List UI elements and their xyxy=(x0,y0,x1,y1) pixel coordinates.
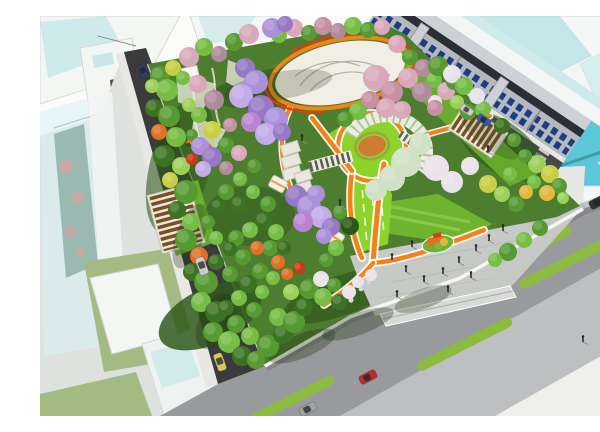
tree xyxy=(247,159,261,173)
tree xyxy=(494,186,510,202)
tree xyxy=(293,212,313,232)
tree xyxy=(330,23,346,39)
tree xyxy=(295,298,313,316)
tree xyxy=(374,19,390,35)
tree xyxy=(174,180,198,204)
tree xyxy=(516,232,532,248)
tree xyxy=(241,327,259,345)
aerial-park-rendering: Aerial rendering of urban park master pl… xyxy=(40,16,600,416)
tree xyxy=(255,285,269,299)
tree xyxy=(307,185,325,203)
tree xyxy=(239,24,259,44)
tree xyxy=(204,90,224,110)
tree xyxy=(441,171,463,193)
tree xyxy=(182,213,200,231)
tree xyxy=(469,88,485,104)
tree xyxy=(319,253,333,267)
tree xyxy=(227,315,245,333)
tree xyxy=(281,268,293,280)
tree xyxy=(231,290,247,306)
tree xyxy=(175,229,197,251)
tree xyxy=(156,79,178,101)
tree xyxy=(341,217,359,235)
tree xyxy=(365,269,377,281)
tree xyxy=(503,167,517,181)
tree xyxy=(360,22,376,38)
tree xyxy=(231,145,247,161)
tree xyxy=(182,98,196,112)
tree xyxy=(233,172,247,186)
tree xyxy=(268,224,284,240)
tree xyxy=(246,302,262,318)
tree xyxy=(494,118,510,134)
tree xyxy=(162,172,178,188)
tree xyxy=(208,254,224,270)
tree xyxy=(246,185,260,199)
tree xyxy=(222,266,238,282)
tree xyxy=(250,241,264,255)
tree xyxy=(186,153,198,165)
tree xyxy=(218,184,234,200)
tree xyxy=(223,242,237,256)
tree xyxy=(219,161,233,175)
tree xyxy=(277,16,293,32)
tree xyxy=(518,149,532,163)
tree xyxy=(328,240,344,256)
tree xyxy=(195,38,213,56)
tree xyxy=(260,196,276,212)
tree xyxy=(316,228,332,244)
tree xyxy=(151,124,167,140)
tree xyxy=(266,271,280,285)
tree xyxy=(242,222,258,238)
tree xyxy=(402,49,418,65)
tree xyxy=(153,145,175,167)
tree xyxy=(427,100,443,116)
tree xyxy=(235,249,251,265)
tree xyxy=(532,220,548,236)
tree xyxy=(557,192,569,204)
tree xyxy=(218,300,234,316)
tree xyxy=(195,161,211,177)
tree xyxy=(388,35,406,53)
tree xyxy=(277,241,291,255)
tree xyxy=(412,82,432,102)
tree xyxy=(376,98,396,118)
tree xyxy=(409,133,431,155)
tree xyxy=(365,179,387,201)
tree xyxy=(337,111,353,127)
tree xyxy=(223,118,237,132)
tree xyxy=(333,205,347,219)
tree xyxy=(168,201,186,219)
tree xyxy=(314,17,332,35)
tree xyxy=(314,288,332,306)
tree xyxy=(189,75,207,93)
tree xyxy=(262,240,278,256)
tree xyxy=(201,215,215,229)
tree xyxy=(176,71,190,85)
tree xyxy=(461,157,479,175)
tree xyxy=(327,278,341,292)
tree xyxy=(252,263,268,279)
tree xyxy=(145,79,159,93)
tree xyxy=(539,185,555,201)
tree xyxy=(273,123,291,141)
tree xyxy=(293,262,305,274)
tree xyxy=(479,175,497,193)
tree xyxy=(166,127,186,147)
tree xyxy=(344,17,362,35)
tree xyxy=(507,133,521,147)
tree xyxy=(239,275,257,293)
tree xyxy=(519,185,533,199)
tree xyxy=(231,196,247,212)
tree xyxy=(211,46,227,62)
tree xyxy=(342,285,356,299)
tree xyxy=(271,255,285,269)
tree xyxy=(313,271,329,287)
tree xyxy=(393,101,411,119)
tree xyxy=(508,196,524,212)
tree xyxy=(283,284,299,300)
aerial-rendering-canvas: Aerial rendering of urban park master pl… xyxy=(40,16,600,416)
tree xyxy=(158,105,180,127)
tree xyxy=(203,121,221,139)
island-shrub xyxy=(435,243,442,250)
tree xyxy=(211,199,225,213)
tree xyxy=(352,276,364,288)
tree xyxy=(488,253,502,267)
tree xyxy=(209,231,223,245)
